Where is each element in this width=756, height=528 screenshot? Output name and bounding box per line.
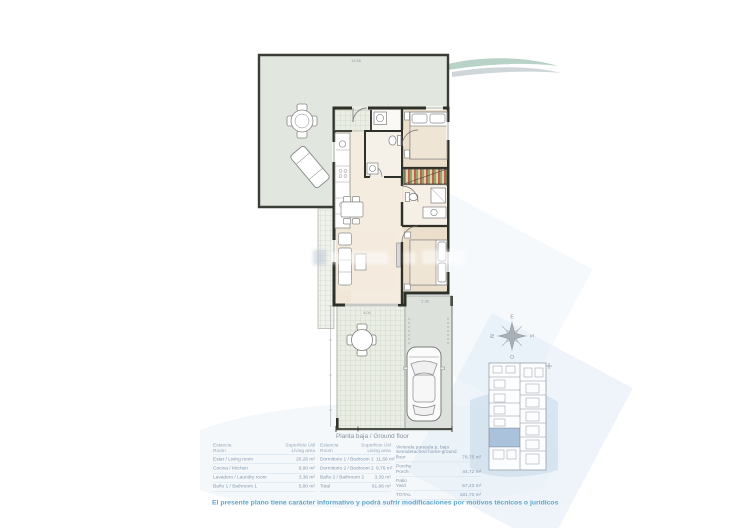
- table-row: Dormitorio 1 / Bedroom 111,66 m²: [320, 455, 391, 464]
- table-row: Baño 1 / Bathroom 15,80 m²: [213, 482, 315, 491]
- laundry-room: [374, 112, 387, 125]
- highlighted-unit: [490, 429, 520, 447]
- table-row: Lavadero / Laundry room3,36 m²: [213, 473, 315, 482]
- table-header: EstanciaRoom Superficie ÚtilLiving area: [213, 443, 315, 455]
- building: [334, 108, 448, 306]
- plan-title: Planta baja / Ground floor: [336, 433, 464, 440]
- table-header: EstanciaRoom Superficie ÚtilLiving area: [320, 443, 391, 455]
- disclaimer-text: El presente plano tiene carácter informa…: [212, 499, 559, 506]
- table-row: Cocina / Kitchen8,90 m²: [213, 464, 315, 473]
- floor-plan-page: 13.55 4.00 2.38: [0, 0, 756, 528]
- compass-west-label: O: [510, 355, 514, 361]
- table-row: Baño 2 / Bathroom 23,39 m²: [320, 473, 391, 482]
- car-top-view: [404, 347, 445, 421]
- table-row: PorchePorch 44,72 m²: [396, 462, 481, 476]
- stairs: [404, 169, 447, 184]
- dim-driveway-width: 2.38: [421, 300, 428, 304]
- area-table-group-3: Vivienda pareada p. bajaSemidetached hom…: [396, 443, 481, 500]
- compass-north-label: N: [490, 334, 496, 338]
- site-key-plan: [489, 363, 552, 470]
- dim-porch-width: 4.00: [363, 311, 370, 315]
- driveway: 2.38: [404, 296, 454, 430]
- area-table-group-1: EstanciaRoom Superficie ÚtilLiving area …: [213, 443, 315, 491]
- table-row: Vivienda pareada p. bajaSemidetached hom…: [396, 443, 481, 462]
- table-row: Dormitorio 2 / Bedroom 29,76 m²: [320, 464, 391, 473]
- dim-top-width: 13.55: [351, 59, 361, 63]
- table-row: Total61,96 m²: [320, 482, 391, 491]
- side-path: [318, 209, 334, 329]
- area-table-group-2: EstanciaRoom Superficie ÚtilLiving area …: [320, 443, 391, 491]
- porch: 4.00: [336, 306, 405, 430]
- table-row: PatioYard 57,23 m²: [396, 477, 481, 491]
- top-swoosh-gray: [452, 67, 562, 77]
- bed-1: [405, 112, 448, 159]
- bathroom-1: [365, 131, 402, 177]
- table-row: Estar / Living room20,26 m²: [213, 455, 315, 464]
